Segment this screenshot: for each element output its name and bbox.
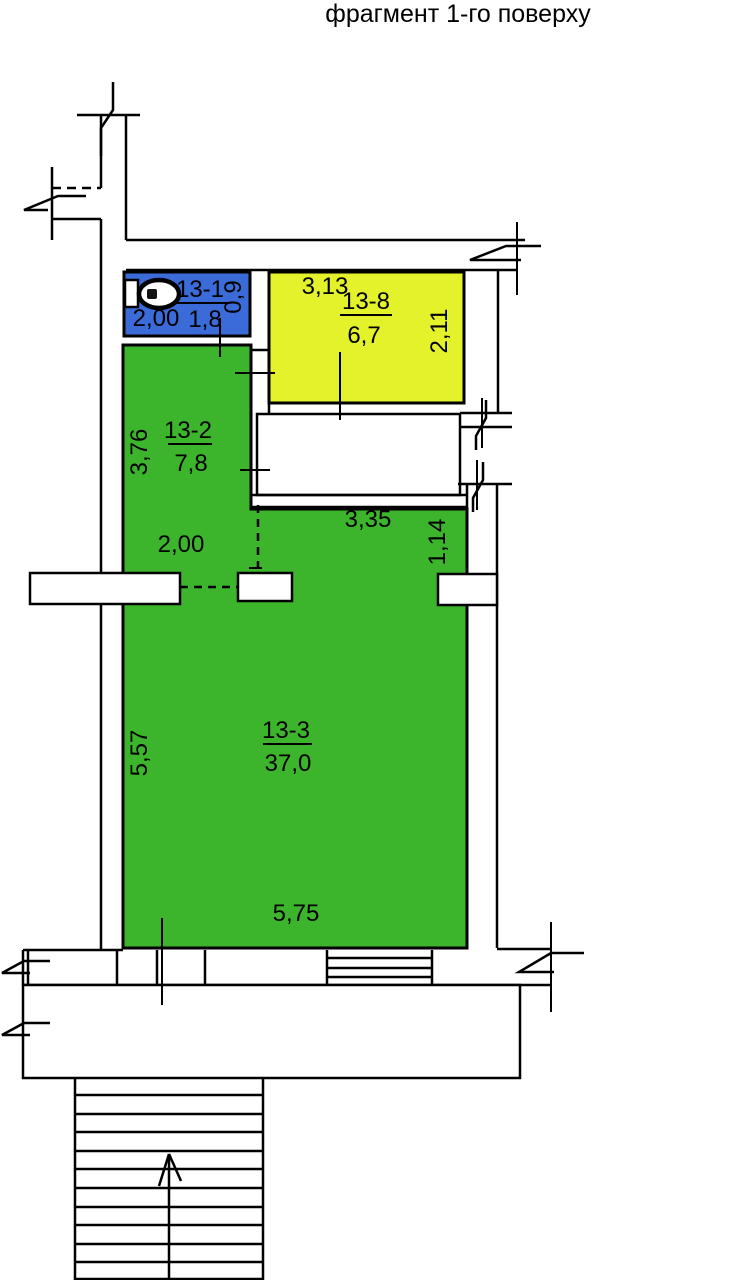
wall-top (126, 240, 525, 270)
wall-bottom-band (23, 950, 550, 985)
window-glazing (327, 958, 432, 977)
pilaster-left (30, 573, 180, 604)
wall-right-lower (458, 484, 552, 949)
break-mark-top-left (101, 82, 113, 156)
room-13-1-number: 13-1 (176, 276, 224, 303)
break-mark-left-stub (24, 196, 86, 210)
floor-plan-page: фрагмент 1-го поверху 13-1 1,8 2,00 0,9 … (0, 0, 748, 1280)
toilet-icon (125, 280, 179, 308)
pilaster-middle (238, 573, 292, 601)
dim-niche-depth: 1,14 (424, 519, 451, 566)
entrance-porch (23, 985, 520, 1078)
room-13-3-area-label: 37,0 (265, 750, 312, 777)
pilaster-right (438, 574, 497, 605)
dim-13-3-depth: 5,57 (126, 730, 153, 777)
dim-13-2-depth: 3,76 (126, 429, 153, 476)
dim-13-1-width: 2,00 (133, 305, 180, 332)
dim-13-8-depth: 2,11 (426, 309, 453, 354)
room-13-2-number: 13-2 (164, 417, 212, 444)
dim-13-3-width: 5,75 (273, 900, 320, 927)
dim-13-1-depth: 0,9 (220, 280, 247, 313)
room-13-8-number: 13-8 (342, 288, 390, 315)
wall-top-left-stub (52, 115, 140, 240)
recess-room-area (257, 414, 460, 495)
room-13-2-area-label: 7,8 (174, 450, 207, 477)
page-title: фрагмент 1-го поверху (325, 0, 591, 28)
stairs (75, 1078, 263, 1280)
floor-plan-drawing: фрагмент 1-го поверху 13-1 1,8 2,00 0,9 … (0, 0, 748, 1280)
room-13-8-area-label: 6,7 (347, 322, 380, 349)
room-13-1-area-label: 1,8 (188, 306, 221, 333)
room-13-3-number: 13-3 (262, 717, 310, 744)
dim-13-2-opening: 2,00 (158, 531, 205, 558)
break-mark-top-right (470, 246, 541, 260)
dim-niche-width: 3,35 (345, 506, 392, 533)
break-mark-bottom-left-1 (2, 961, 50, 973)
